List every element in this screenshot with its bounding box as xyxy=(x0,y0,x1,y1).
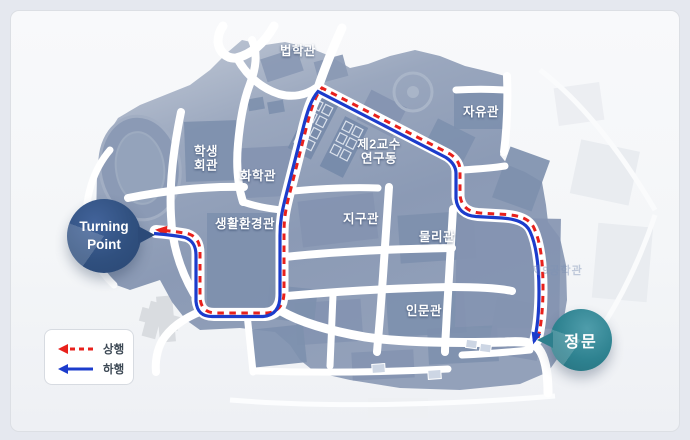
campus-map-page: 법학관 자유관 학생 회관 화학관 제2교수 연구동 생활환경관 지구관 물리관… xyxy=(0,0,690,440)
turning-point-badge: Turning Point xyxy=(67,199,141,273)
up-route-dashed-arrow-icon xyxy=(58,344,94,354)
main-gate-badge: 정문 xyxy=(550,309,612,371)
legend-item-down: 하행 xyxy=(58,360,133,377)
badge-pointer-left-icon xyxy=(537,332,553,348)
badge-shine xyxy=(67,199,141,273)
route-legend: 상행 하행 xyxy=(44,329,134,385)
badge-pointer-right-icon xyxy=(138,226,155,244)
down-route-solid-arrow-icon xyxy=(58,364,94,374)
badge-shine xyxy=(550,309,612,371)
legend-item-up: 상행 xyxy=(58,340,133,357)
